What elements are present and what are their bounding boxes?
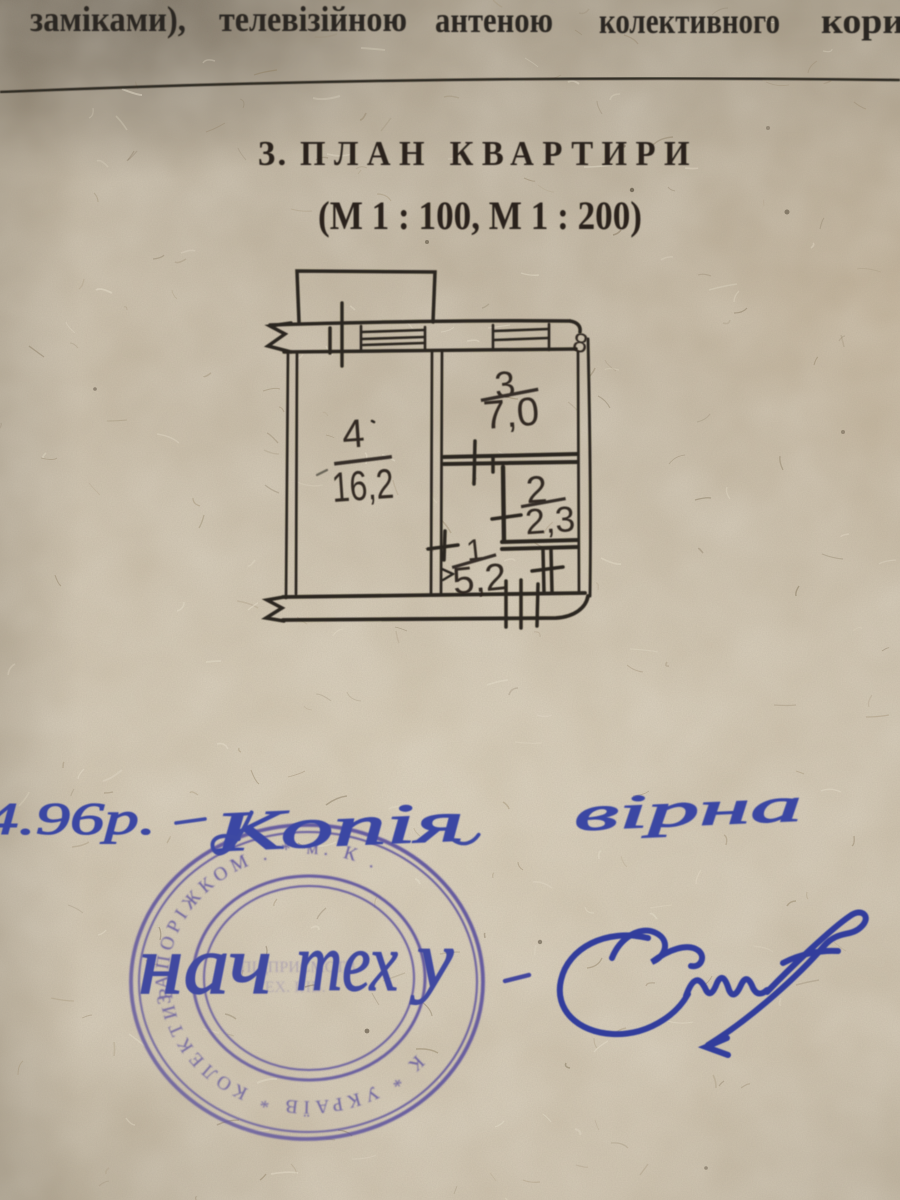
svg-text:Копія: Копія	[211, 791, 465, 864]
svg-text:3.: 3.	[258, 134, 288, 173]
svg-text:4: 4	[341, 412, 366, 457]
svg-text:ПЛАН КВАРТИРИ: ПЛАН КВАРТИРИ	[300, 134, 698, 173]
svg-text:вірна: вірна	[573, 778, 803, 841]
svg-text:2,3: 2,3	[524, 498, 577, 542]
svg-text:5,2: 5,2	[451, 556, 509, 603]
svg-text:тех: тех	[296, 917, 398, 1008]
svg-text:телевізійною: телевізійною	[219, 0, 407, 39]
svg-text:у: у	[410, 914, 454, 1005]
svg-text:нач: нач	[138, 919, 272, 1012]
svg-text:7,0: 7,0	[481, 389, 541, 438]
svg-text:заміками),: заміками),	[30, 0, 186, 39]
svg-text:колективного: колективного	[599, 1, 780, 41]
svg-text:(М 1 : 100, М 1 : 200): (М 1 : 100, М 1 : 200)	[318, 193, 642, 238]
svg-text:16,2: 16,2	[330, 460, 395, 511]
svg-text:корис: корис	[821, 1, 900, 41]
svg-text:антеною: антеною	[435, 0, 553, 40]
svg-text:4.96р.: 4.96р.	[0, 793, 156, 844]
